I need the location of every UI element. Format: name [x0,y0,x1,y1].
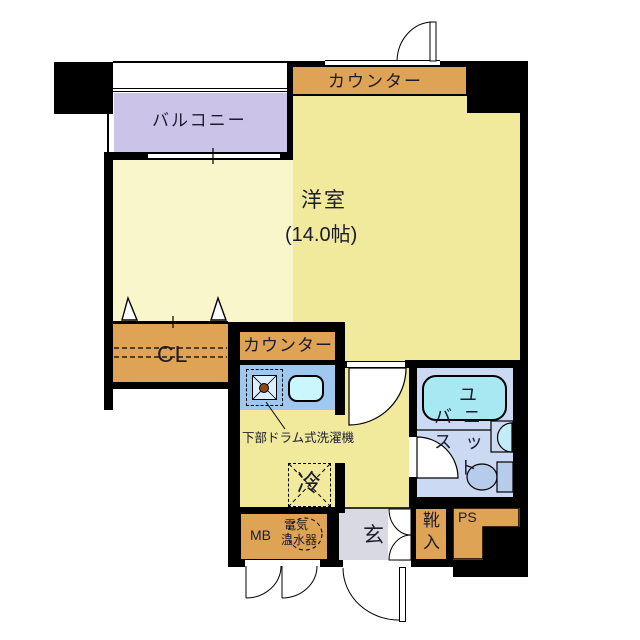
wall-hall-left [335,463,345,510]
wall-top-left-seg [291,61,325,66]
floorplan-canvas: バルコニー カウンター 洋室 (14.0帖) CL カウンター 下部ドラム式洗濯… [0,0,640,640]
wall-closet-bottom [104,382,228,389]
kitchen-counter-label: カウンター [243,337,333,354]
meter-box-label: MB [250,528,271,542]
entrance-label: 玄 [363,525,384,546]
wall-pillar-topleft [54,62,113,114]
balcony-railing [113,61,293,89]
kitchen-door-threshold [347,361,405,368]
main-room-label: 洋室 [301,190,347,211]
counter-top-label: カウンター [328,73,423,90]
top-door-arc [397,22,433,61]
wall-bottom-mid [320,560,343,567]
bath-doorway [409,437,417,477]
wall-shoe-ps-divider [447,508,453,560]
water-heater-label-1: 電気 [284,519,308,531]
main-room-pale-area [113,160,293,322]
entrance-door-leaf [399,567,406,622]
entrance-door-arc [343,568,399,620]
wall-bath-top [405,360,513,368]
top-door-threshold [325,60,440,66]
wall-genkan-left [328,508,339,567]
wall-bath-right [513,360,528,508]
mb-doorway [245,560,320,567]
wall-bottom-shoe [411,560,453,567]
mb-door-arc-right [282,566,317,598]
top-door-leaf [430,22,436,61]
wall-kitchen-left [228,322,240,567]
wall-corner-topright [467,61,528,113]
wall-window-right [280,152,293,160]
bath-label-char-3: ッ [465,433,483,451]
wall-top-right-seg [440,61,467,67]
shoe-door-area [388,509,411,560]
wall-bottom-mb-left [228,560,245,567]
bath-label-char-4: ト [459,459,477,477]
fridge-label: 冷 [297,472,321,496]
shoe-label-1: 靴 [423,512,440,529]
entrance-doorway [343,560,399,567]
wall-ps-block [483,527,520,560]
wall-bath-left-upper [409,368,417,437]
bath-label-char-6: ス [434,433,452,451]
bath-label-char-5: バ [434,408,452,426]
pipe-space-label: PS [458,510,477,524]
balcony-left-line [107,114,109,153]
mb-door-arc-left [246,566,281,598]
wall-bath-bottom [409,497,520,508]
stove-inner-box [252,375,277,400]
water-heater-label-2: 温水器 [281,534,317,546]
wall-kitchen-right [335,322,345,415]
main-room-size-label: (14.0帖) [285,225,357,245]
kitchen-sink [288,375,324,402]
wall-mb-top [228,507,345,513]
wall-bottom-right-block [453,560,528,577]
washer-note-label: 下部ドラム式洗濯機 [242,432,354,445]
bath-label-char-1: ユ [459,386,477,404]
balcony-railing-line [113,91,293,92]
closet-label: CL [157,343,188,366]
wall-left [104,153,113,410]
hall-floor-area [345,362,409,508]
wall-shoe-door-leaf [411,508,415,560]
shoe-label-2: 入 [423,534,440,551]
balcony-window [148,152,280,160]
wall-counter-top [228,322,345,332]
wall-balcony-right [287,61,293,153]
bath-label-char-2: ニ [463,408,481,426]
balcony-label: バルコニー [152,112,247,129]
